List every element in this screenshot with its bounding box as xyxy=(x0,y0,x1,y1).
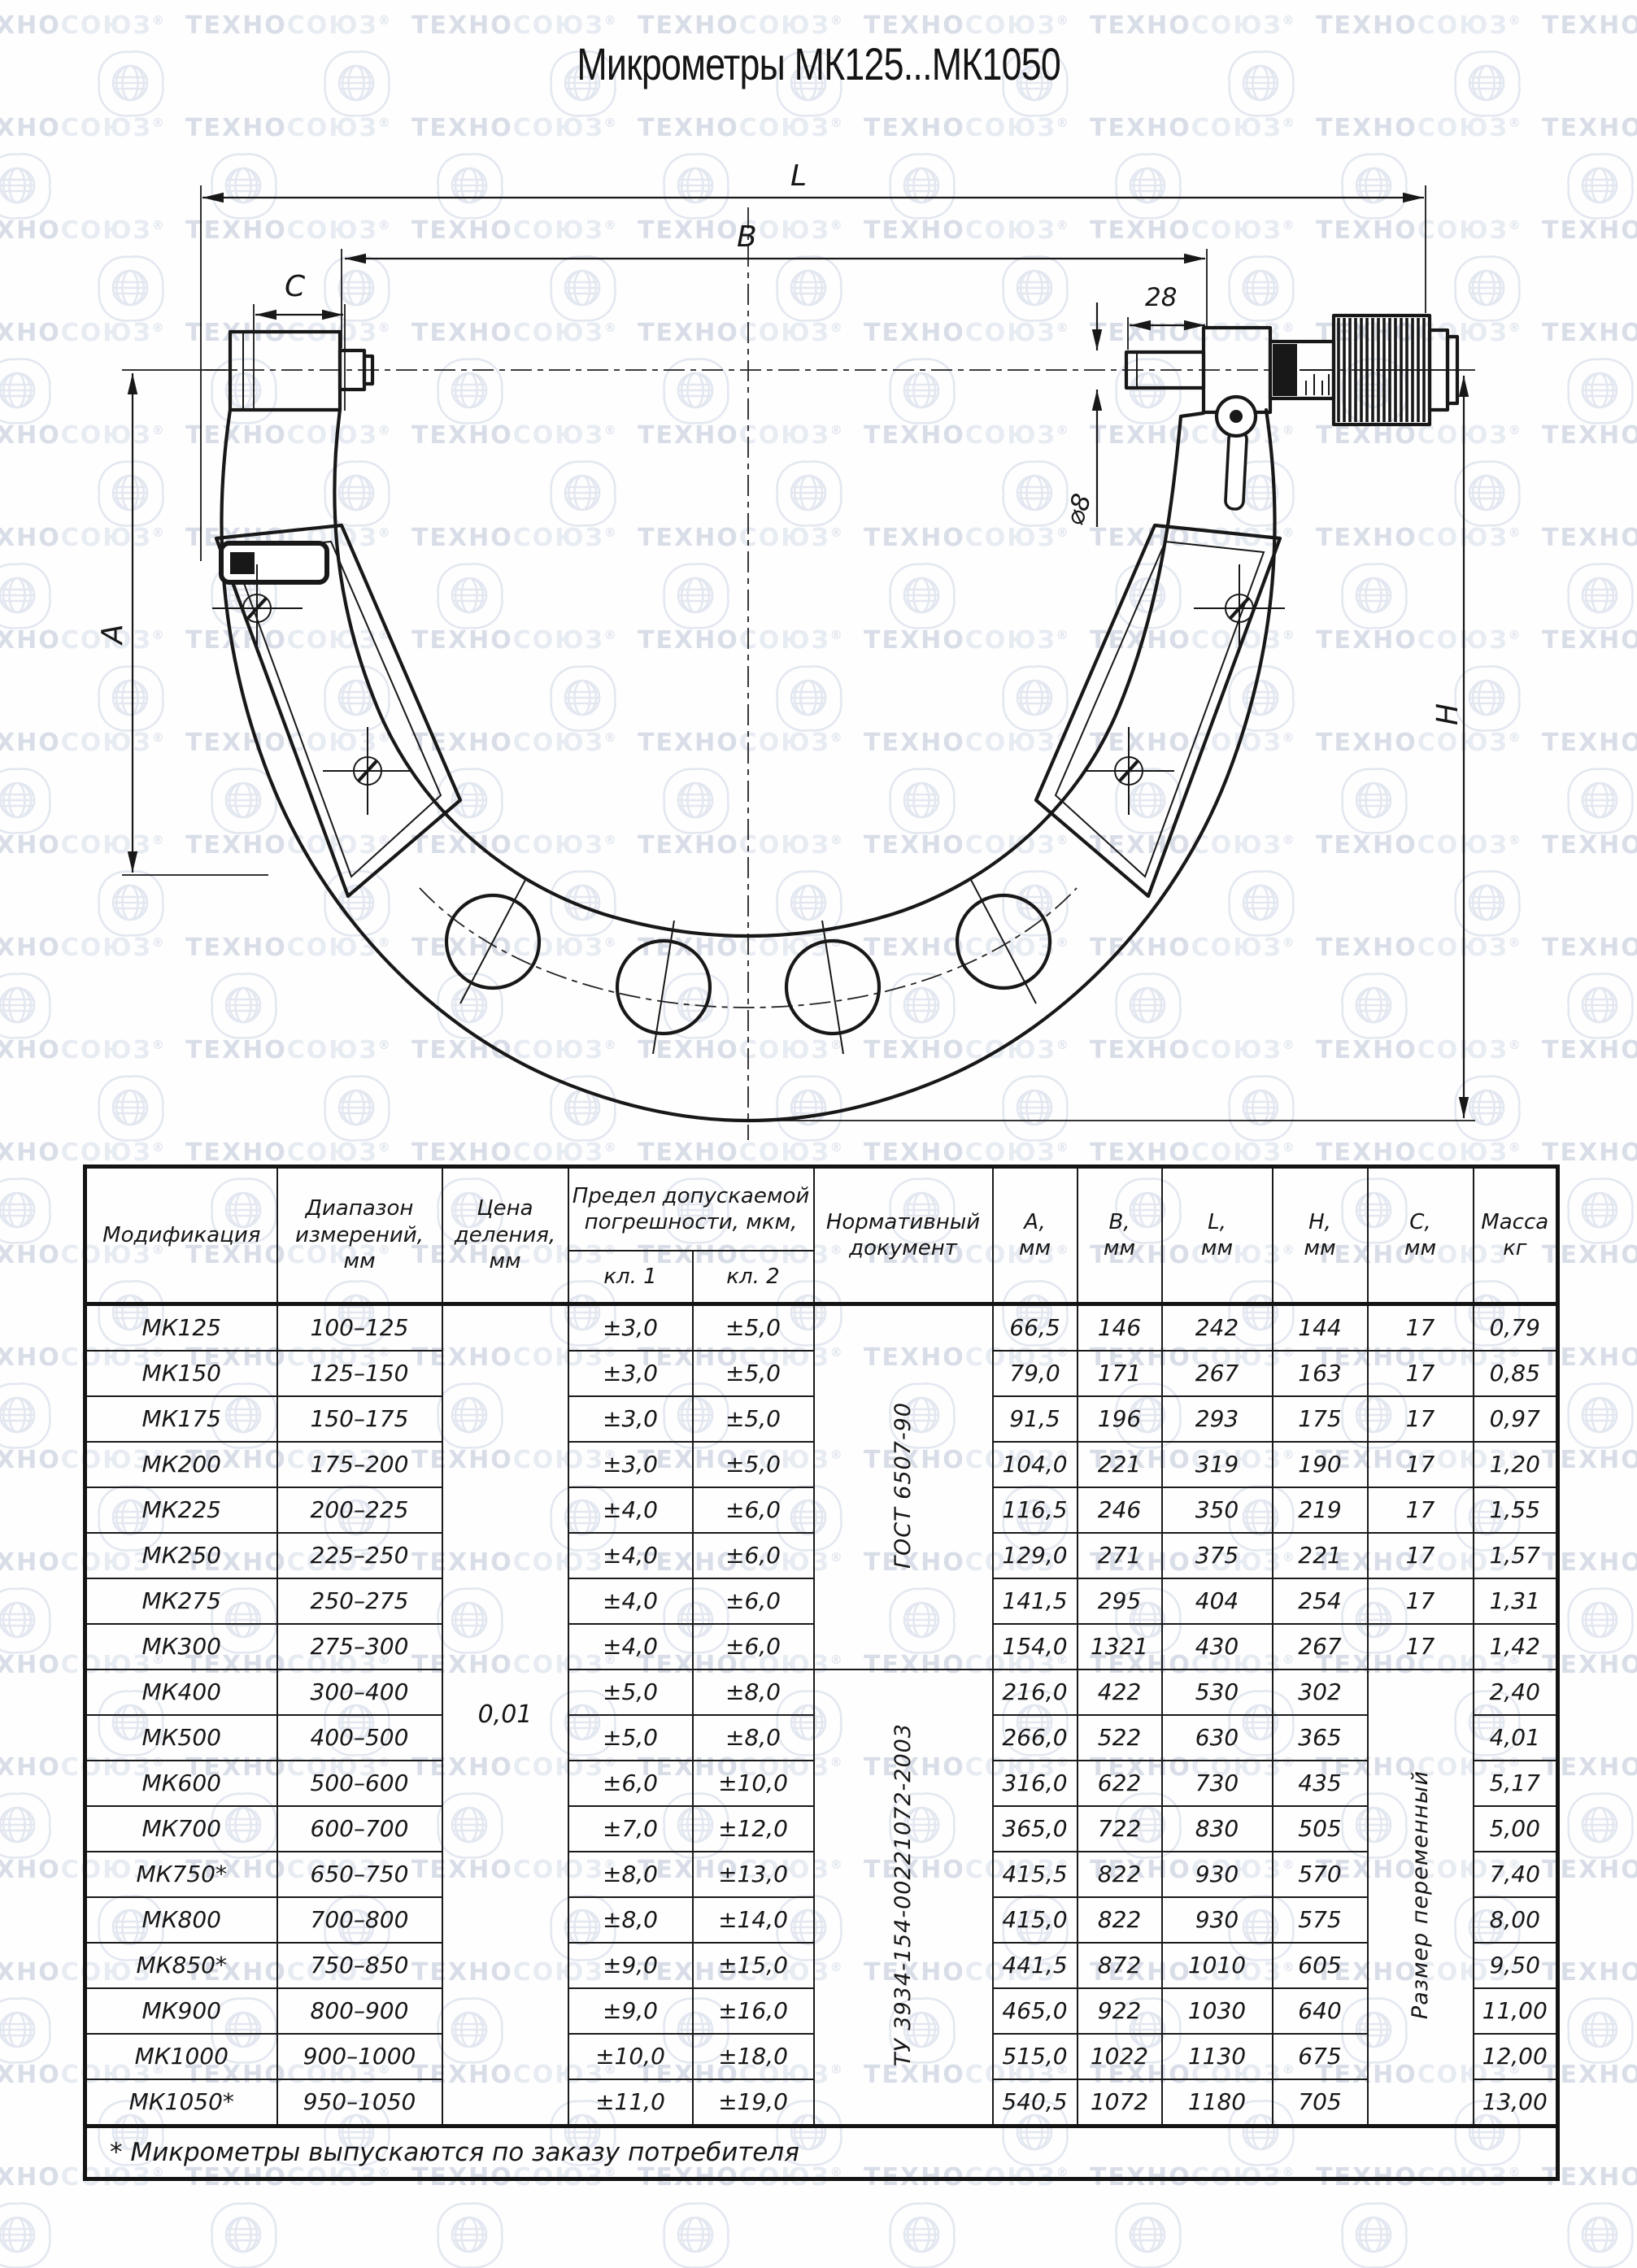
cell-mass: 5,17 xyxy=(1474,1761,1558,1806)
cell-range: 250–275 xyxy=(277,1578,442,1624)
col-header-C: C, мм xyxy=(1368,1167,1474,1304)
cell-class1: ±7,0 xyxy=(568,1806,693,1852)
watermark-tile: ТЕХНОСОЮЗ® xyxy=(638,11,844,40)
label-28: 28 xyxy=(1145,283,1177,312)
cell-range: 650–750 xyxy=(277,1852,442,1897)
cell-L: 404 xyxy=(1162,1578,1273,1624)
cell-class2: ±6,0 xyxy=(693,1533,814,1578)
cell-model: МК800 xyxy=(85,1897,277,1943)
cell-L: 830 xyxy=(1162,1806,1273,1852)
cell-model: МК600 xyxy=(85,1761,277,1806)
cell-B: 522 xyxy=(1078,1715,1162,1761)
label-B: B xyxy=(737,220,757,254)
cell-class2: ±5,0 xyxy=(693,1396,814,1442)
cell-L: 530 xyxy=(1162,1669,1273,1715)
cell-H: 175 xyxy=(1273,1396,1368,1442)
watermark-globe-icon xyxy=(0,2194,58,2268)
label-L: L xyxy=(790,159,807,193)
cell-H: 254 xyxy=(1273,1578,1368,1624)
watermark-globe-icon xyxy=(0,1989,58,2074)
cell-class2: ±5,0 xyxy=(693,1442,814,1487)
cell-C: 17 xyxy=(1368,1533,1474,1578)
cell-class1: ±3,0 xyxy=(568,1442,693,1487)
cell-mass: 2,40 xyxy=(1474,1669,1558,1715)
watermark-tile: ТЕХНОСОЮЗ® xyxy=(864,11,1070,40)
cell-B: 196 xyxy=(1078,1396,1162,1442)
cell-H: 575 xyxy=(1273,1897,1368,1943)
cell-range: 175–200 xyxy=(277,1442,442,1487)
cell-L: 319 xyxy=(1162,1442,1273,1487)
cell-class1: ±9,0 xyxy=(568,1943,693,1988)
dimension-lines xyxy=(133,198,1464,1118)
spec-table-body: МК125100–1250,01±3,0±5,0ГОСТ 6507-9066,5… xyxy=(85,1304,1558,2127)
cell-mass: 12,00 xyxy=(1474,2034,1558,2079)
anvil-assembly xyxy=(230,332,372,410)
lock-lever xyxy=(1226,430,1247,509)
cell-model: МК500 xyxy=(85,1715,277,1761)
cell-model: МК850* xyxy=(85,1943,277,1988)
cell-mass: 1,20 xyxy=(1474,1442,1558,1487)
col-header-error: Предел допускаемой погрешности, мкм, xyxy=(568,1167,814,1252)
cell-L: 1030 xyxy=(1162,1988,1273,2034)
watermark-tile: ТЕХНОСОЮЗ® xyxy=(0,11,166,40)
cell-B: 722 xyxy=(1078,1806,1162,1852)
cell-class2: ±6,0 xyxy=(693,1578,814,1624)
cell-model: МК225 xyxy=(85,1487,277,1533)
col-header-class2: кл. 2 xyxy=(693,1251,814,1304)
watermark-globe-icon xyxy=(0,1784,58,1869)
watermark-globe-icon xyxy=(0,1169,58,1254)
watermark-tile: ТЕХНОСОЮЗ® xyxy=(411,11,618,40)
watermark-globe-icon xyxy=(429,2194,510,2268)
watermark-globe-icon xyxy=(0,1374,58,1459)
spec-table-wrap: Модификация Диапазон измерений, мм Цена … xyxy=(83,1164,1560,2181)
cell-class1: ±11,0 xyxy=(568,2079,693,2127)
col-header-mass: Масса кг xyxy=(1474,1167,1558,1304)
cell-C-variable: Размер переменный xyxy=(1368,1669,1474,2127)
cell-class1: ±5,0 xyxy=(568,1715,693,1761)
label-C: C xyxy=(285,270,306,303)
cell-document-tu: ТУ 3934-154-00221072-2003 xyxy=(892,1723,914,2066)
table-row: МК400300–400±5,0±8,0ТУ 3934-154-00221072… xyxy=(85,1669,1558,1715)
watermark-globe-icon xyxy=(1559,555,1637,639)
cell-document-tu: ТУ 3934-154-00221072-2003 xyxy=(814,1669,993,2127)
cell-L: 930 xyxy=(1162,1897,1273,1943)
cell-C: 17 xyxy=(1368,1304,1474,1352)
cell-B: 295 xyxy=(1078,1578,1162,1624)
cell-range: 600–700 xyxy=(277,1806,442,1852)
cell-L: 242 xyxy=(1162,1304,1273,1352)
cell-class2: ±10,0 xyxy=(693,1761,814,1806)
col-header-range: Диапазон измерений, мм xyxy=(277,1167,442,1304)
watermark-globe-icon xyxy=(655,2194,736,2268)
col-header-modification: Модификация xyxy=(85,1167,277,1304)
cell-H: 267 xyxy=(1273,1624,1368,1669)
cell-model: МК300 xyxy=(85,1624,277,1669)
cell-range: 200–225 xyxy=(277,1487,442,1533)
cell-model: МК1050* xyxy=(85,2079,277,2127)
cell-model: МК125 xyxy=(85,1304,277,1352)
cell-model: МК400 xyxy=(85,1669,277,1715)
cell-class2: ±18,0 xyxy=(693,2034,814,2079)
cell-L: 930 xyxy=(1162,1852,1273,1897)
cell-class1: ±10,0 xyxy=(568,2034,693,2079)
cell-A: 540,5 xyxy=(993,2079,1078,2127)
watermark-globe-icon xyxy=(0,1579,58,1664)
cell-H: 365 xyxy=(1273,1715,1368,1761)
dimension-labels: L B C 28 ⌀8 A H xyxy=(96,159,1465,725)
cell-A: 365,0 xyxy=(993,1806,1078,1852)
micrometer-technical-drawing: L B C 28 ⌀8 A H xyxy=(81,88,1570,1163)
watermark-tile: ТЕХНОСОЮЗ® xyxy=(1316,11,1522,40)
cell-A: 441,5 xyxy=(993,1943,1078,1988)
watermark-globe-icon xyxy=(1559,2194,1637,2268)
col-header-division: Цена деления, мм xyxy=(442,1167,568,1304)
cell-A: 515,0 xyxy=(993,2034,1078,2079)
cell-model: МК200 xyxy=(85,1442,277,1487)
cell-range: 275–300 xyxy=(277,1624,442,1669)
cell-class2: ±6,0 xyxy=(693,1624,814,1669)
cell-C-variable: Размер переменный xyxy=(1409,1770,1431,2019)
cell-range: 150–175 xyxy=(277,1396,442,1442)
col-header-L: L, мм xyxy=(1162,1167,1273,1304)
watermark-globe-icon xyxy=(1559,1989,1637,2074)
cell-A: 415,5 xyxy=(993,1852,1078,1897)
catalog-page: ТЕХНОСОЮЗ®ТЕХНОСОЮЗ®ТЕХНОСОЮЗ®ТЕХНОСОЮЗ®… xyxy=(0,0,1637,2268)
spec-table: Модификация Диапазон измерений, мм Цена … xyxy=(83,1164,1560,2181)
cell-class1: ±4,0 xyxy=(568,1624,693,1669)
cell-H: 640 xyxy=(1273,1988,1368,2034)
cell-class1: ±4,0 xyxy=(568,1578,693,1624)
cell-L: 1010 xyxy=(1162,1943,1273,1988)
cell-C: 17 xyxy=(1368,1487,1474,1533)
watermark-globe-icon xyxy=(202,2194,284,2268)
cell-range: 950–1050 xyxy=(277,2079,442,2127)
cell-mass: 4,01 xyxy=(1474,1715,1558,1761)
cell-range: 225–250 xyxy=(277,1533,442,1578)
cell-A: 415,0 xyxy=(993,1897,1078,1943)
cell-class2: ±6,0 xyxy=(693,1487,814,1533)
cell-class1: ±5,0 xyxy=(568,1669,693,1715)
cell-range: 800–900 xyxy=(277,1988,442,2034)
cell-range: 300–400 xyxy=(277,1669,442,1715)
cell-L: 375 xyxy=(1162,1533,1273,1578)
cell-mass: 9,50 xyxy=(1474,1943,1558,1988)
cell-H: 219 xyxy=(1273,1487,1368,1533)
cell-class2: ±19,0 xyxy=(693,2079,814,2127)
watermark-globe-icon xyxy=(1107,2194,1188,2268)
cell-L: 730 xyxy=(1162,1761,1273,1806)
watermark-globe-icon xyxy=(1559,1169,1637,1254)
cell-H: 675 xyxy=(1273,2034,1368,2079)
cell-H: 144 xyxy=(1273,1304,1368,1352)
cell-C: 17 xyxy=(1368,1442,1474,1487)
cell-document-gost: ГОСТ 6507-90 xyxy=(814,1304,993,1670)
cell-class1: ±8,0 xyxy=(568,1852,693,1897)
cell-L: 267 xyxy=(1162,1351,1273,1396)
cell-class2: ±12,0 xyxy=(693,1806,814,1852)
cell-model: МК250 xyxy=(85,1533,277,1578)
cell-A: 66,5 xyxy=(993,1304,1078,1352)
cell-B: 1022 xyxy=(1078,2034,1162,2079)
cell-document-gost: ГОСТ 6507-90 xyxy=(892,1402,914,1569)
cell-B: 622 xyxy=(1078,1761,1162,1806)
watermark-globe-icon xyxy=(1559,964,1637,1049)
cell-L: 1130 xyxy=(1162,2034,1273,2079)
cell-A: 154,0 xyxy=(993,1624,1078,1669)
label-A: A xyxy=(96,624,129,646)
cell-A: 465,0 xyxy=(993,1988,1078,2034)
watermark-globe-icon xyxy=(1559,760,1637,844)
watermark-globe-icon xyxy=(1333,2194,1414,2268)
cell-H: 605 xyxy=(1273,1943,1368,1988)
cell-class1: ±4,0 xyxy=(568,1533,693,1578)
cell-class2: ±15,0 xyxy=(693,1943,814,1988)
cell-A: 104,0 xyxy=(993,1442,1078,1487)
cell-mass: 0,97 xyxy=(1474,1396,1558,1442)
cell-B: 422 xyxy=(1078,1669,1162,1715)
col-header-A: A, мм xyxy=(993,1167,1078,1304)
cell-L: 630 xyxy=(1162,1715,1273,1761)
cell-H: 570 xyxy=(1273,1852,1368,1897)
watermark-globe-icon xyxy=(1559,350,1637,434)
cell-mass: 5,00 xyxy=(1474,1806,1558,1852)
cell-B: 271 xyxy=(1078,1533,1162,1578)
footnote: * Микрометры выпускаются по заказу потре… xyxy=(85,2127,1558,2179)
cell-B: 922 xyxy=(1078,1988,1162,2034)
cell-L: 350 xyxy=(1162,1487,1273,1533)
cell-H: 190 xyxy=(1273,1442,1368,1487)
cell-model: МК150 xyxy=(85,1351,277,1396)
cell-model: МК750* xyxy=(85,1852,277,1897)
cell-B: 171 xyxy=(1078,1351,1162,1396)
cell-range: 750–850 xyxy=(277,1943,442,1988)
watermark-globe-icon xyxy=(0,555,58,639)
col-header-class1: кл. 1 xyxy=(568,1251,693,1304)
cell-model: МК275 xyxy=(85,1578,277,1624)
watermark-globe-icon xyxy=(881,2194,962,2268)
cell-B: 1072 xyxy=(1078,2079,1162,2127)
cell-class2: ±16,0 xyxy=(693,1988,814,2034)
cell-B: 246 xyxy=(1078,1487,1162,1533)
cell-class2: ±8,0 xyxy=(693,1669,814,1715)
cell-mass: 1,55 xyxy=(1474,1487,1558,1533)
cell-mass: 7,40 xyxy=(1474,1852,1558,1897)
col-header-H: H, мм xyxy=(1273,1167,1368,1304)
cell-H: 163 xyxy=(1273,1351,1368,1396)
watermark-tile: ТЕХНОСОЮЗ® xyxy=(1542,11,1637,40)
cell-class2: ±13,0 xyxy=(693,1852,814,1897)
watermark-globe-icon xyxy=(1559,1784,1637,1869)
cell-class1: ±9,0 xyxy=(568,1988,693,2034)
watermark-globe-icon xyxy=(0,145,58,229)
cell-L: 293 xyxy=(1162,1396,1273,1442)
cell-mass: 13,00 xyxy=(1474,2079,1558,2127)
cell-A: 79,0 xyxy=(993,1351,1078,1396)
cell-range: 700–800 xyxy=(277,1897,442,1943)
watermark-globe-icon xyxy=(1559,1374,1637,1459)
watermark-globe-icon xyxy=(1559,1579,1637,1664)
cell-mass: 0,85 xyxy=(1474,1351,1558,1396)
cell-class1: ±3,0 xyxy=(568,1396,693,1442)
cell-A: 91,5 xyxy=(993,1396,1078,1442)
cell-B: 872 xyxy=(1078,1943,1162,1988)
cell-C: 17 xyxy=(1368,1624,1474,1669)
cell-A: 216,0 xyxy=(993,1669,1078,1715)
cell-mass: 11,00 xyxy=(1474,1988,1558,2034)
spec-table-footer: * Микрометры выпускаются по заказу потре… xyxy=(85,2127,1558,2179)
cell-B: 822 xyxy=(1078,1897,1162,1943)
cell-mass: 1,57 xyxy=(1474,1533,1558,1578)
cell-range: 500–600 xyxy=(277,1761,442,1806)
cell-class2: ±14,0 xyxy=(693,1897,814,1943)
watermark-globe-icon xyxy=(1559,145,1637,229)
cell-H: 435 xyxy=(1273,1761,1368,1806)
cell-H: 221 xyxy=(1273,1533,1368,1578)
cell-model: МК1000 xyxy=(85,2034,277,2079)
cell-model: МК700 xyxy=(85,1806,277,1852)
cell-range: 125–150 xyxy=(277,1351,442,1396)
cell-class1: ±4,0 xyxy=(568,1487,693,1533)
cell-H: 705 xyxy=(1273,2079,1368,2127)
cell-class1: ±3,0 xyxy=(568,1351,693,1396)
table-row: МК125100–1250,01±3,0±5,0ГОСТ 6507-9066,5… xyxy=(85,1304,1558,1352)
cell-class2: ±8,0 xyxy=(693,1715,814,1761)
cell-H: 302 xyxy=(1273,1669,1368,1715)
cell-class1: ±3,0 xyxy=(568,1304,693,1352)
cell-model: МК900 xyxy=(85,1988,277,2034)
cell-L: 1180 xyxy=(1162,2079,1273,2127)
label-H: H xyxy=(1431,703,1465,725)
cell-class2: ±5,0 xyxy=(693,1351,814,1396)
cell-B: 822 xyxy=(1078,1852,1162,1897)
cell-range: 100–125 xyxy=(277,1304,442,1352)
cell-division-value: 0,01 xyxy=(442,1304,568,2127)
cell-mass: 1,31 xyxy=(1474,1578,1558,1624)
cell-range: 900–1000 xyxy=(277,2034,442,2079)
page-title-text: Микрометры МК125...МК1050 xyxy=(577,37,1060,90)
spindle-assembly xyxy=(1126,316,1457,510)
col-header-document: Нормативный документ xyxy=(814,1167,993,1304)
cell-A: 129,0 xyxy=(993,1533,1078,1578)
watermark-tile: ТЕХНОСОЮЗ® xyxy=(185,11,392,40)
cell-range: 400–500 xyxy=(277,1715,442,1761)
left-grip-plate xyxy=(212,525,460,896)
cell-C: 17 xyxy=(1368,1578,1474,1624)
cell-class1: ±8,0 xyxy=(568,1897,693,1943)
cell-B: 221 xyxy=(1078,1442,1162,1487)
cell-class1: ±6,0 xyxy=(568,1761,693,1806)
watermark-globe-icon xyxy=(0,964,58,1049)
cell-H: 505 xyxy=(1273,1806,1368,1852)
watermark-globe-icon xyxy=(0,760,58,844)
cell-A: 316,0 xyxy=(993,1761,1078,1806)
spec-table-header: Модификация Диапазон измерений, мм Цена … xyxy=(85,1167,1558,1304)
watermark-tile: ТЕХНОСОЮЗ® xyxy=(1090,11,1296,40)
col-header-B: B, мм xyxy=(1078,1167,1162,1304)
cell-B: 1321 xyxy=(1078,1624,1162,1669)
cell-A: 116,5 xyxy=(993,1487,1078,1533)
cell-C: 17 xyxy=(1368,1351,1474,1396)
cell-A: 266,0 xyxy=(993,1715,1078,1761)
extension-lines xyxy=(122,185,1475,1121)
cell-class2: ±5,0 xyxy=(693,1304,814,1352)
label-dia8: ⌀8 xyxy=(1060,490,1097,529)
cell-L: 430 xyxy=(1162,1624,1273,1669)
cell-model: МК175 xyxy=(85,1396,277,1442)
cell-mass: 8,00 xyxy=(1474,1897,1558,1943)
cell-B: 146 xyxy=(1078,1304,1162,1352)
watermark-globe-icon xyxy=(0,350,58,434)
page-title: Микрометры МК125...МК1050 xyxy=(0,37,1637,90)
cell-C: 17 xyxy=(1368,1396,1474,1442)
cell-A: 141,5 xyxy=(993,1578,1078,1624)
cell-mass: 1,42 xyxy=(1474,1624,1558,1669)
cell-mass: 0,79 xyxy=(1474,1304,1558,1352)
